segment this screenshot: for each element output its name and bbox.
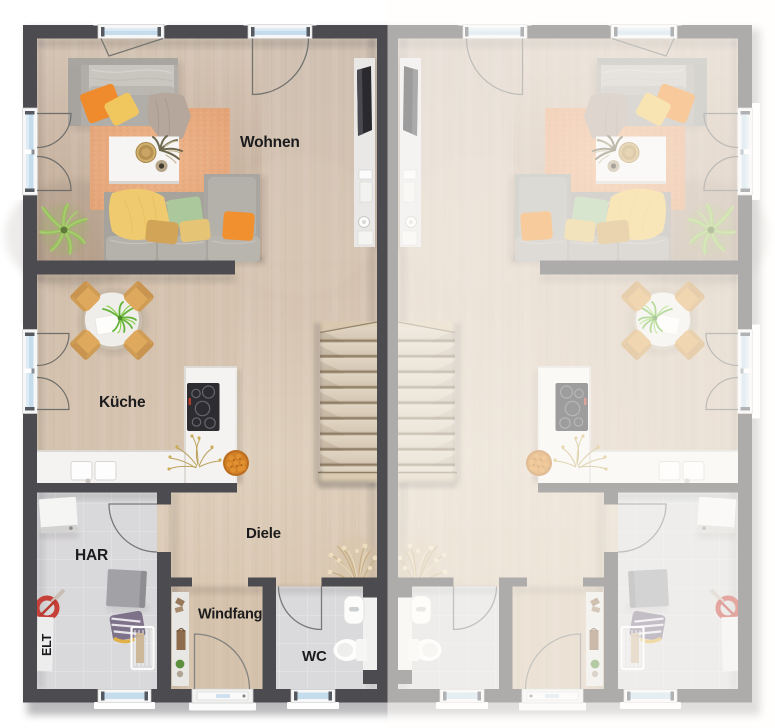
svg-text:ELT: ELT xyxy=(40,633,54,656)
svg-text:Diele: Diele xyxy=(246,525,281,542)
svg-text:Windfang: Windfang xyxy=(198,607,262,623)
svg-text:Küche: Küche xyxy=(99,394,146,411)
svg-text:WC: WC xyxy=(302,648,327,665)
svg-text:Wohnen: Wohnen xyxy=(240,134,300,151)
svg-text:HAR: HAR xyxy=(75,547,108,564)
